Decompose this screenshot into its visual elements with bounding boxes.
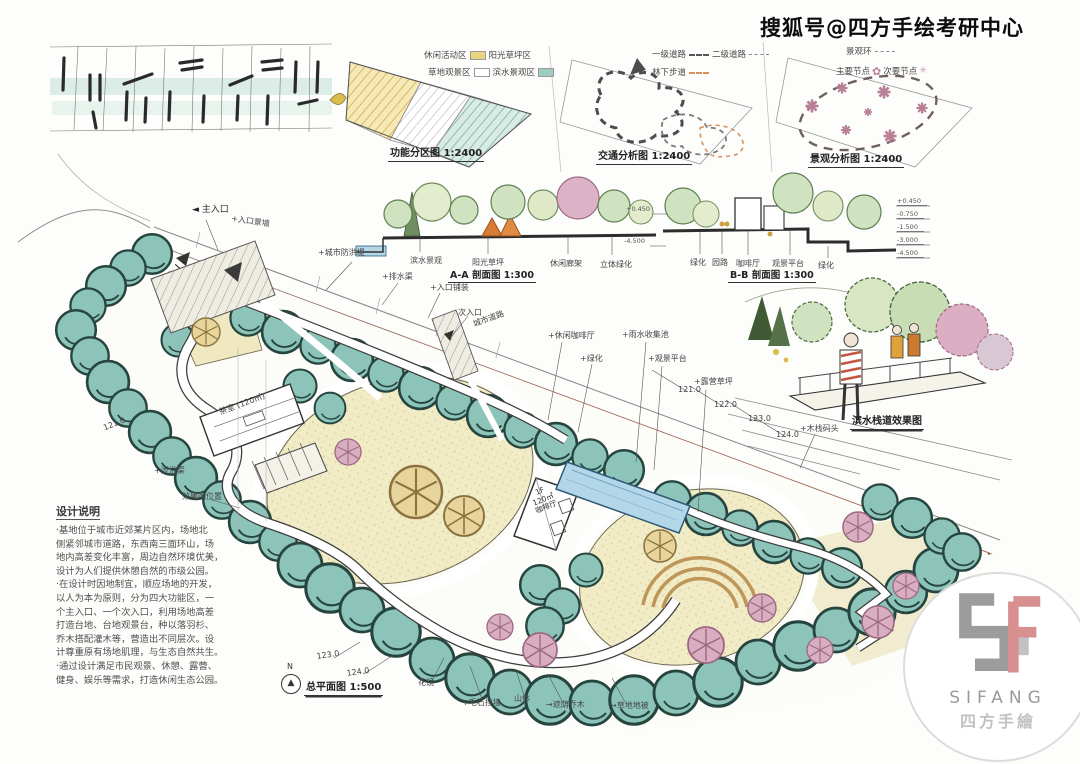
secondary-node-icon: ✳ bbox=[919, 66, 927, 76]
north-arrow: ▲ bbox=[281, 674, 301, 694]
label-drain-channel: +排水渠 bbox=[382, 272, 413, 281]
legend-forest-path: 林下步道 bbox=[652, 68, 686, 78]
label-boardwalk-pier: +木栈码头 bbox=[800, 424, 839, 433]
perspective-caption: 滨水栈道效果图 bbox=[850, 416, 924, 430]
logo-name: SIFANG bbox=[905, 688, 1080, 708]
scenic-legend-row2: 主要节点✿次要节点✳ bbox=[836, 65, 929, 78]
section-bb-art bbox=[650, 173, 896, 258]
north-label: N bbox=[287, 662, 293, 671]
section-aa-art bbox=[356, 177, 656, 256]
note-line: 地内高差变化丰富，周边自然环境优美， bbox=[56, 551, 240, 565]
scenic-legend-row1: 景观环 bbox=[846, 47, 898, 57]
zoning-caption: 功能分区图 1:2400 bbox=[388, 148, 484, 162]
bb-elev-stack-3: -1.500 bbox=[897, 223, 924, 232]
note-line: ·在设计时因地制宜，顺应场地的开发， bbox=[56, 578, 240, 592]
legend-secondary-road: 二级道路 bbox=[712, 50, 746, 60]
primary-road-swatch bbox=[689, 54, 709, 56]
sifang-logo: SIFANG 四方手繪 bbox=[903, 572, 1080, 762]
north-arrow-icon: ▲ bbox=[282, 675, 300, 692]
zoning-legend-row1: 休闲活动区阳光草坪区 bbox=[424, 51, 531, 61]
masterplan-caption: 总平面图 1:500 bbox=[304, 682, 383, 696]
bb-elev-stack-2: -0.750 bbox=[897, 210, 924, 219]
bb-caption: B-B 剖面图 1:300 bbox=[728, 270, 816, 283]
label-groundcover: →草地地被 bbox=[610, 701, 649, 710]
legend-main-node: 主要节点 bbox=[836, 67, 870, 77]
scenic-caption: 景观分析图 1:2400 bbox=[808, 154, 904, 168]
logo-cn-name: 四方手繪 bbox=[905, 708, 1080, 732]
note-line: 以人为本为原则，分为四大功能区，一 bbox=[56, 592, 240, 606]
bb-elev-stack-5: -4.500 bbox=[897, 249, 924, 258]
bb-label-path: 园路 bbox=[712, 258, 728, 267]
bb-label-platform: 观景平台 bbox=[772, 259, 804, 268]
note-line: 打造台地、台地观景台，种以落羽杉、 bbox=[56, 619, 240, 633]
zoning-legend-row2: 草地观景区滨水景观区 bbox=[428, 68, 557, 78]
contour-122: 122.0 bbox=[714, 400, 737, 409]
aa-label-green: 立体绿化 bbox=[600, 260, 632, 269]
label-main-entrance: ◄ 主入口 bbox=[192, 205, 229, 215]
label-leisure-cafe: +休闲咖啡厅 bbox=[548, 331, 595, 340]
contour-124: 124.0 bbox=[776, 430, 799, 439]
figure-foreground bbox=[840, 333, 862, 420]
zone-yellow-swatch bbox=[470, 51, 486, 60]
note-line: 健身、娱乐等需求，打造休闲生态公园。 bbox=[56, 674, 240, 688]
design-notes-title: 设计说明 bbox=[56, 503, 100, 520]
leaf-doodle bbox=[330, 93, 346, 104]
note-line: 乔木搭配灌木等，营造出不同层次。设 bbox=[56, 633, 240, 647]
legend-scenic-ring: 景观环 bbox=[846, 47, 872, 57]
bb-elev-stack-1: +0.450 bbox=[897, 197, 927, 206]
secondary-road-swatch bbox=[749, 54, 769, 55]
aa-caption: A-A 剖面图 1:300 bbox=[448, 270, 536, 283]
legend-primary-road: 一级道路 bbox=[652, 50, 686, 60]
entrance-arrow-icon: ◄ bbox=[192, 205, 199, 215]
note-line: 个主入口、一个次入口，利用场地高差 bbox=[56, 606, 240, 620]
label-mountain: 山体 bbox=[514, 694, 530, 703]
label-shade-trees: →遮荫乔木 bbox=[546, 700, 585, 709]
legend-secondary-node: 次要节点 bbox=[883, 67, 917, 77]
label-flood-dike: +城市防洪堤 bbox=[318, 248, 365, 257]
label-greenery: +绿化 bbox=[580, 354, 603, 363]
note-line: ·通过设计满足市民观景、休憩、露营、 bbox=[56, 660, 240, 674]
traffic-caption: 交通分析图 1:2400 bbox=[596, 151, 692, 165]
contour-121: 121.0 bbox=[678, 385, 701, 394]
forest-path-swatch bbox=[689, 72, 709, 74]
note-line: 设计为人们提供休憩自然的市级公园。 bbox=[56, 565, 240, 579]
aa-label-pergola: 休闲廊架 bbox=[550, 259, 582, 268]
label-spillway: +泄洪渠 bbox=[154, 466, 185, 475]
traffic-legend-row2: 林下步道 bbox=[652, 68, 712, 78]
zone-white-swatch bbox=[474, 68, 490, 77]
note-line: 侧紧邻城市道路，东西南三面环山，场 bbox=[56, 538, 240, 552]
bb-elev-left-1: +0.450 bbox=[626, 206, 650, 213]
drawing-sheet: 搜狐号@四方手绘考研中心 休闲活动区阳光草坪区 草地观景区滨水景观区 功能分区图… bbox=[0, 0, 1080, 764]
bb-elev-stack-4: -3.000 bbox=[897, 236, 924, 245]
label-secondary-entrance: 次入口 bbox=[458, 308, 482, 317]
bb-label-green2: 绿化 bbox=[818, 261, 834, 270]
traffic-legend-row1: 一级道路二级道路 bbox=[652, 50, 772, 60]
aa-label-lawn: 阳光草坪 bbox=[472, 258, 504, 267]
label-viewing-platform: +观景平台 bbox=[648, 354, 687, 363]
contour-123: 123.0 bbox=[748, 414, 771, 423]
legend-zone-lawn: 阳光草坪区 bbox=[489, 51, 532, 61]
bb-label-green1: 绿化 bbox=[690, 258, 706, 267]
watermark: 搜狐号@四方手绘考研中心 bbox=[760, 12, 1078, 42]
legend-zone-water: 滨水景观区 bbox=[493, 68, 536, 78]
perspective-art bbox=[728, 278, 1013, 480]
aa-label-waterfront: 滨水景观 bbox=[410, 256, 442, 265]
note-line: ·基地位于城市近郊某片区内，场地北 bbox=[56, 524, 240, 538]
note-line: 计尊重原有场地肌理，与生态自然共生。 bbox=[56, 646, 240, 660]
bb-label-cafe: 咖啡厅 bbox=[736, 259, 760, 268]
zone-teal-swatch bbox=[538, 68, 554, 77]
label-flower-border: 花镜 bbox=[418, 678, 434, 687]
sifang-monogram-icon bbox=[950, 590, 1046, 682]
scenic-ring-swatch bbox=[875, 51, 895, 52]
label-entrance-paving: +入口铺装 bbox=[430, 283, 469, 292]
stylized-title-sketch bbox=[50, 44, 346, 132]
bb-elev-left-2: -4.500 bbox=[624, 238, 645, 245]
legend-zone-meadow: 草地观景区 bbox=[428, 68, 471, 78]
main-node-icon: ✿ bbox=[872, 65, 881, 78]
legend-zone-leisure: 休闲活动区 bbox=[424, 51, 467, 61]
label-stone-wall: +毛石挡墙 bbox=[462, 698, 501, 707]
label-rainwater-pond: +雨水收集池 bbox=[622, 330, 669, 339]
design-notes: 设计说明 ·基地位于城市近郊某片区内，场地北 侧紧邻城市道路，东西南三面环山，场… bbox=[56, 500, 240, 687]
